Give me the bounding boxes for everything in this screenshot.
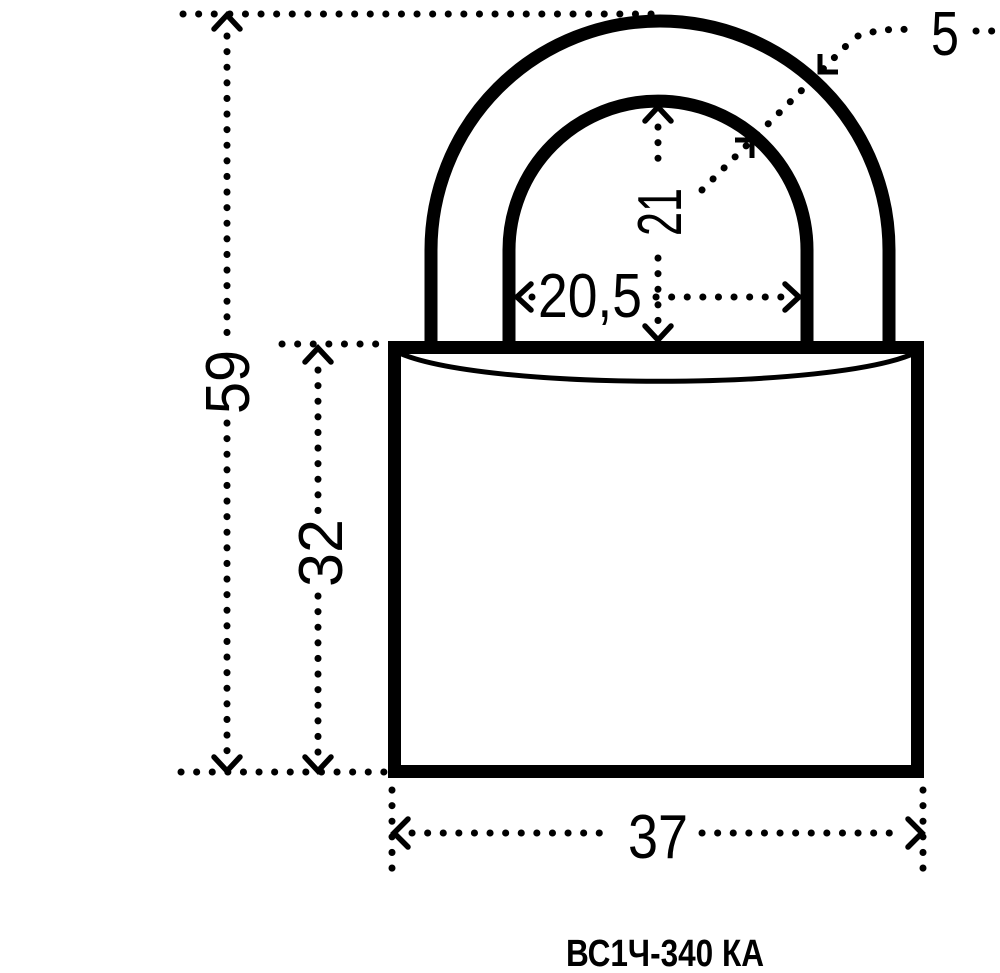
dimension-shackle-diameter: 5	[702, 0, 1000, 190]
dim59-label: 59	[194, 350, 263, 414]
dim37-arrow-right	[908, 819, 922, 847]
dimension-body-width: 37	[392, 790, 923, 874]
drawing-canvas: 59 32 21 20,5	[0, 0, 1000, 973]
padlock-body	[395, 348, 918, 772]
padlock-dimension-drawing: 59 32 21 20,5	[0, 0, 1000, 973]
dim37-arrow-left	[394, 819, 408, 847]
padlock-outline	[395, 21, 918, 772]
dim32-label: 32	[287, 519, 356, 587]
dim21-label: 21	[626, 188, 695, 236]
dim205-arrow-right	[785, 284, 799, 310]
dim21-arrow-down	[645, 326, 671, 340]
dim32-arrow-down	[305, 757, 331, 771]
dim205-label: 20,5	[538, 262, 642, 331]
dim37-label: 37	[628, 803, 688, 872]
dim5-label: 5	[931, 0, 959, 69]
dim59-arrow-up	[214, 15, 240, 29]
dim205-dot-left	[529, 294, 536, 301]
model-label: ВС1Ч-340 КА	[566, 933, 764, 973]
dim5-leader-curve	[858, 29, 914, 36]
dim21-arrow-up	[645, 107, 671, 121]
dim32-arrow-up	[305, 348, 331, 362]
